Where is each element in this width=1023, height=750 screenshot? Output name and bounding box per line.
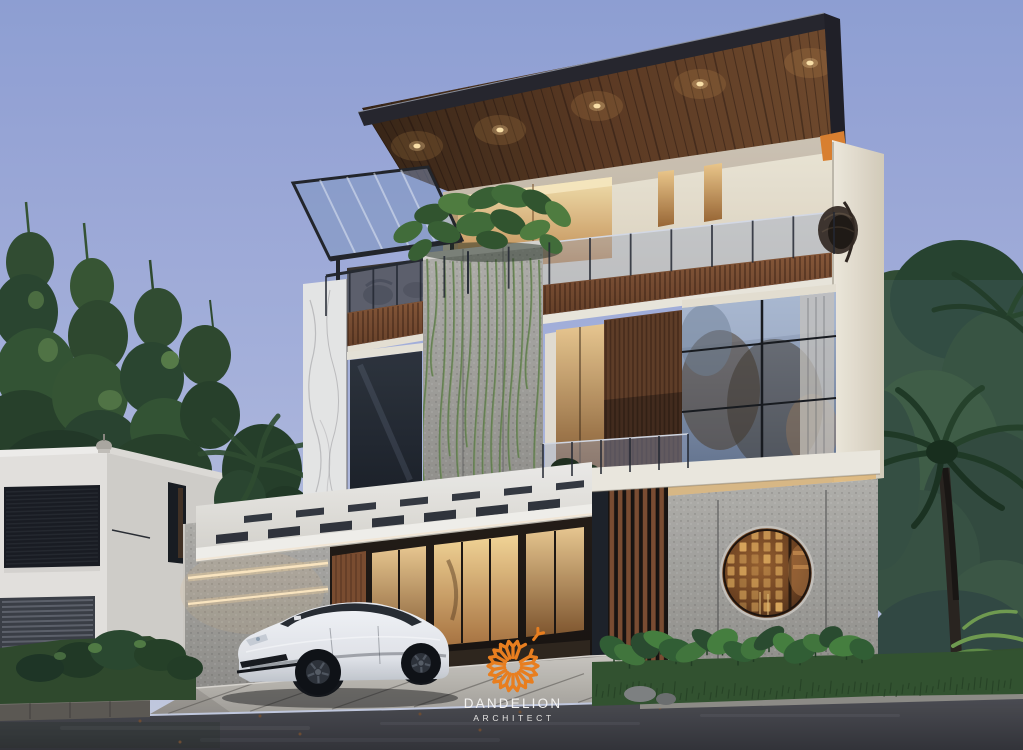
dusk-tint	[0, 0, 1023, 750]
brand-subtitle: ARCHITECT	[473, 713, 555, 723]
architectural-render: DANDELION ARCHITECT	[0, 0, 1023, 750]
brand-name: DANDELION	[464, 696, 563, 711]
